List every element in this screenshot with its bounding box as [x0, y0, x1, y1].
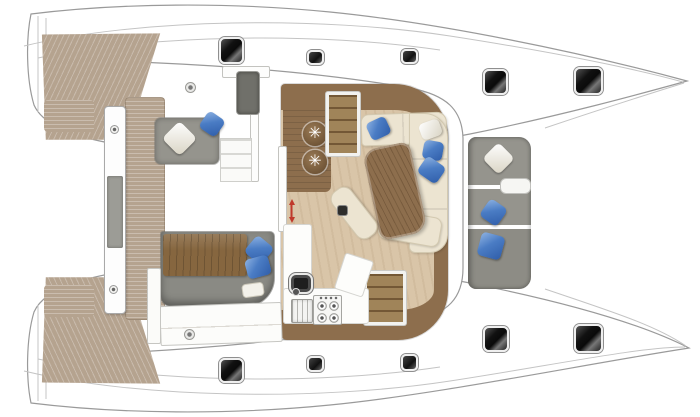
deck-hatch-stbd-aft: [219, 358, 244, 383]
galley-sink: [289, 273, 313, 294]
skylight-stbd-fwd: [401, 354, 418, 371]
skylight-stbd-mid: [307, 356, 324, 372]
skylight-port-fwd: [401, 49, 418, 64]
deck-hatch-port-bow-2: [574, 67, 603, 95]
cockpit-steps: [220, 138, 252, 182]
wardrobe-locker: [147, 268, 161, 344]
deck-hatch-stbd-bow-2: [574, 324, 603, 353]
deck-hatch-stbd-bow-1: [483, 326, 509, 352]
bar-stool-2: [303, 150, 327, 174]
saloon-entry-door: [278, 146, 287, 232]
companionway-stairs-starboard: [364, 271, 406, 325]
galley-oven: [291, 299, 313, 323]
companionway-stairs-port: [326, 92, 360, 156]
deck-fitting-starboard: [184, 329, 195, 340]
deck-hatch-port-aft: [219, 37, 244, 64]
davit-screw-bottom: [109, 285, 118, 294]
helm-console: [237, 72, 259, 114]
foredeck-side-table: [500, 178, 531, 194]
davit-panel: [107, 176, 123, 248]
daybed-wood-mattress: [163, 234, 247, 276]
deck-fitting-port: [185, 82, 196, 93]
davit-screw-top: [110, 125, 119, 134]
galley-wood-column: [283, 110, 331, 192]
galley-stove: [313, 295, 342, 325]
door-direction-arrow: [288, 197, 295, 225]
aft-cabinet: [159, 302, 282, 346]
floor-hatch-box: [338, 206, 347, 215]
catamaran-floor-plan: [0, 0, 700, 417]
deck-hatch-port-bow-1: [483, 69, 508, 95]
bar-stool-1: [303, 122, 327, 146]
transom-teak-step-starboard: [44, 285, 94, 317]
transom-teak-step-port: [44, 100, 94, 132]
skylight-port-mid: [307, 50, 324, 65]
